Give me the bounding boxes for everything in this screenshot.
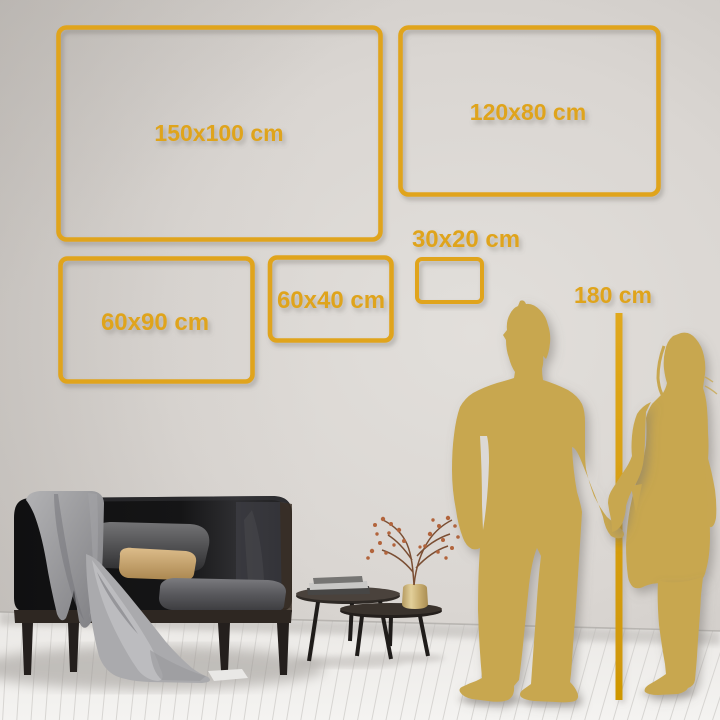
svg-text:120x80 cm: 120x80 cm (470, 99, 586, 125)
svg-text:150x100 cm: 150x100 cm (154, 120, 283, 146)
svg-text:60x40 cm: 60x40 cm (277, 287, 385, 314)
svg-text:60x90 cm: 60x90 cm (101, 309, 209, 336)
svg-text:180 cm: 180 cm (574, 282, 652, 308)
svg-text:30x20 cm: 30x20 cm (412, 226, 520, 253)
